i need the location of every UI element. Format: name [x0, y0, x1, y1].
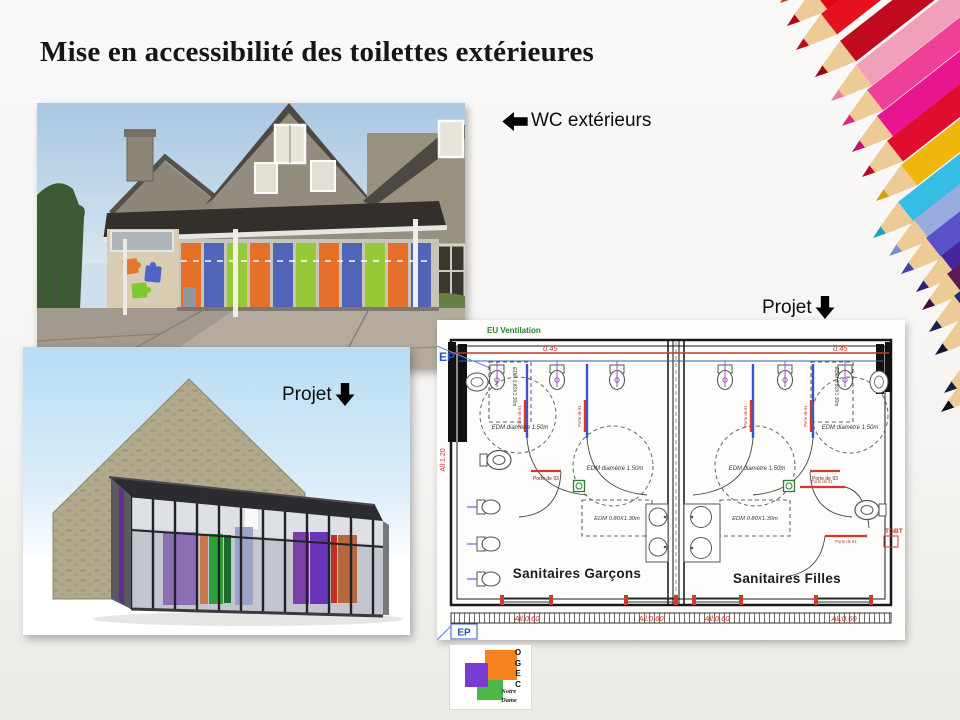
- projet-caption-plan: Projet: [762, 296, 835, 319]
- porte-81-label: Porte de 81: [835, 539, 857, 544]
- projet-caption-render-text: Projet: [282, 384, 332, 406]
- trees: [37, 183, 85, 309]
- edm-rect-label: EDM 0.80X1.30m: [732, 516, 778, 522]
- logo-letter: G: [509, 659, 527, 670]
- ogec-logo: O G E C Notre Dame: [449, 644, 532, 710]
- plan-label-ep-bottom: EP: [457, 628, 471, 639]
- photo-existing-wc-building: [37, 103, 465, 369]
- logo-letter: E: [509, 669, 527, 680]
- edm-rect-label: EDM 0.80X1.30m: [594, 516, 640, 522]
- porte-93-label: Porte de 93: [533, 476, 559, 482]
- floor-drain-left: [574, 481, 585, 492]
- logo-letters: O G E C: [509, 648, 527, 690]
- plan-dim-045-right: 0.45: [833, 344, 848, 353]
- allege-120-label: All:1.20: [440, 448, 447, 471]
- allege-060: All:0.60: [703, 614, 730, 623]
- plan-label-ep-top: EP: [439, 350, 455, 364]
- logo-name: Notre Dame: [501, 688, 517, 705]
- edm-rect-label: EDM 0.80X1.30m: [511, 367, 517, 406]
- logo-name-line: Notre: [501, 688, 517, 697]
- logo-letter: O: [509, 648, 527, 659]
- colored-toilet-doors: [181, 243, 431, 309]
- down-arrow-icon: [335, 383, 355, 406]
- slide-title: Mise en accessibilité des toilettes exté…: [40, 36, 594, 69]
- plan-label-eu-ventilation: EU Ventilation: [487, 326, 541, 335]
- allege-060: All:0.60: [830, 614, 857, 623]
- plan-dim-045-left: 0.45: [543, 344, 558, 353]
- edm-circle-label: EDM diamètre 1.50m: [729, 466, 786, 472]
- wc-exterieurs-caption: WC extérieurs: [502, 110, 651, 132]
- allege-060: All:0.60: [513, 614, 540, 623]
- wc-exterieurs-caption-text: WC extérieurs: [531, 110, 651, 132]
- porte-81-label: Porte de 81: [577, 405, 582, 427]
- presentation-slide: Mise en accessibilité des toilettes exté…: [0, 0, 960, 720]
- box-left-wall: [111, 478, 131, 609]
- photo-scene: [37, 103, 465, 369]
- projet-caption-render: Projet: [282, 383, 355, 406]
- room-name-boys: Sanitaires Garçons: [513, 566, 641, 581]
- logo-name-line: Dame: [501, 697, 517, 706]
- edm-circle-label: EDM diamètre 1.50m: [587, 466, 644, 472]
- porte-81-label: Porte de 81: [811, 479, 833, 484]
- left-block-wall: [107, 229, 179, 313]
- left-arrow-icon: [502, 112, 528, 131]
- porte-81-label: Porte de 81: [517, 405, 522, 427]
- logo-purple-square: [465, 663, 488, 687]
- floor-drain-right: [784, 481, 795, 492]
- edm-rect-label: EDM 0.80X1.30m: [833, 367, 839, 406]
- box-right-edge: [383, 521, 389, 615]
- floor-plan: EU Ventilation E: [437, 320, 905, 640]
- edm-circle-label: EDM diamètre 1.50m: [492, 425, 549, 431]
- porte-81-label: Porte de 81: [803, 405, 808, 427]
- porte-81-label: Porte de 81: [743, 405, 748, 427]
- edm-circle-label: EDM diamètre 1.50m: [822, 425, 879, 431]
- floor-plan-drawing: EU Ventilation E: [437, 320, 905, 640]
- room-name-girls: Sanitaires Filles: [733, 571, 841, 586]
- projet-caption-plan-text: Projet: [762, 297, 812, 319]
- tgbt-label: TGBT: [885, 528, 903, 535]
- down-arrow-icon: [815, 296, 835, 319]
- washbasin-right-wall: [870, 371, 888, 393]
- allege-060: All:0.60: [637, 614, 664, 623]
- washbasin-left-wall: [466, 373, 488, 391]
